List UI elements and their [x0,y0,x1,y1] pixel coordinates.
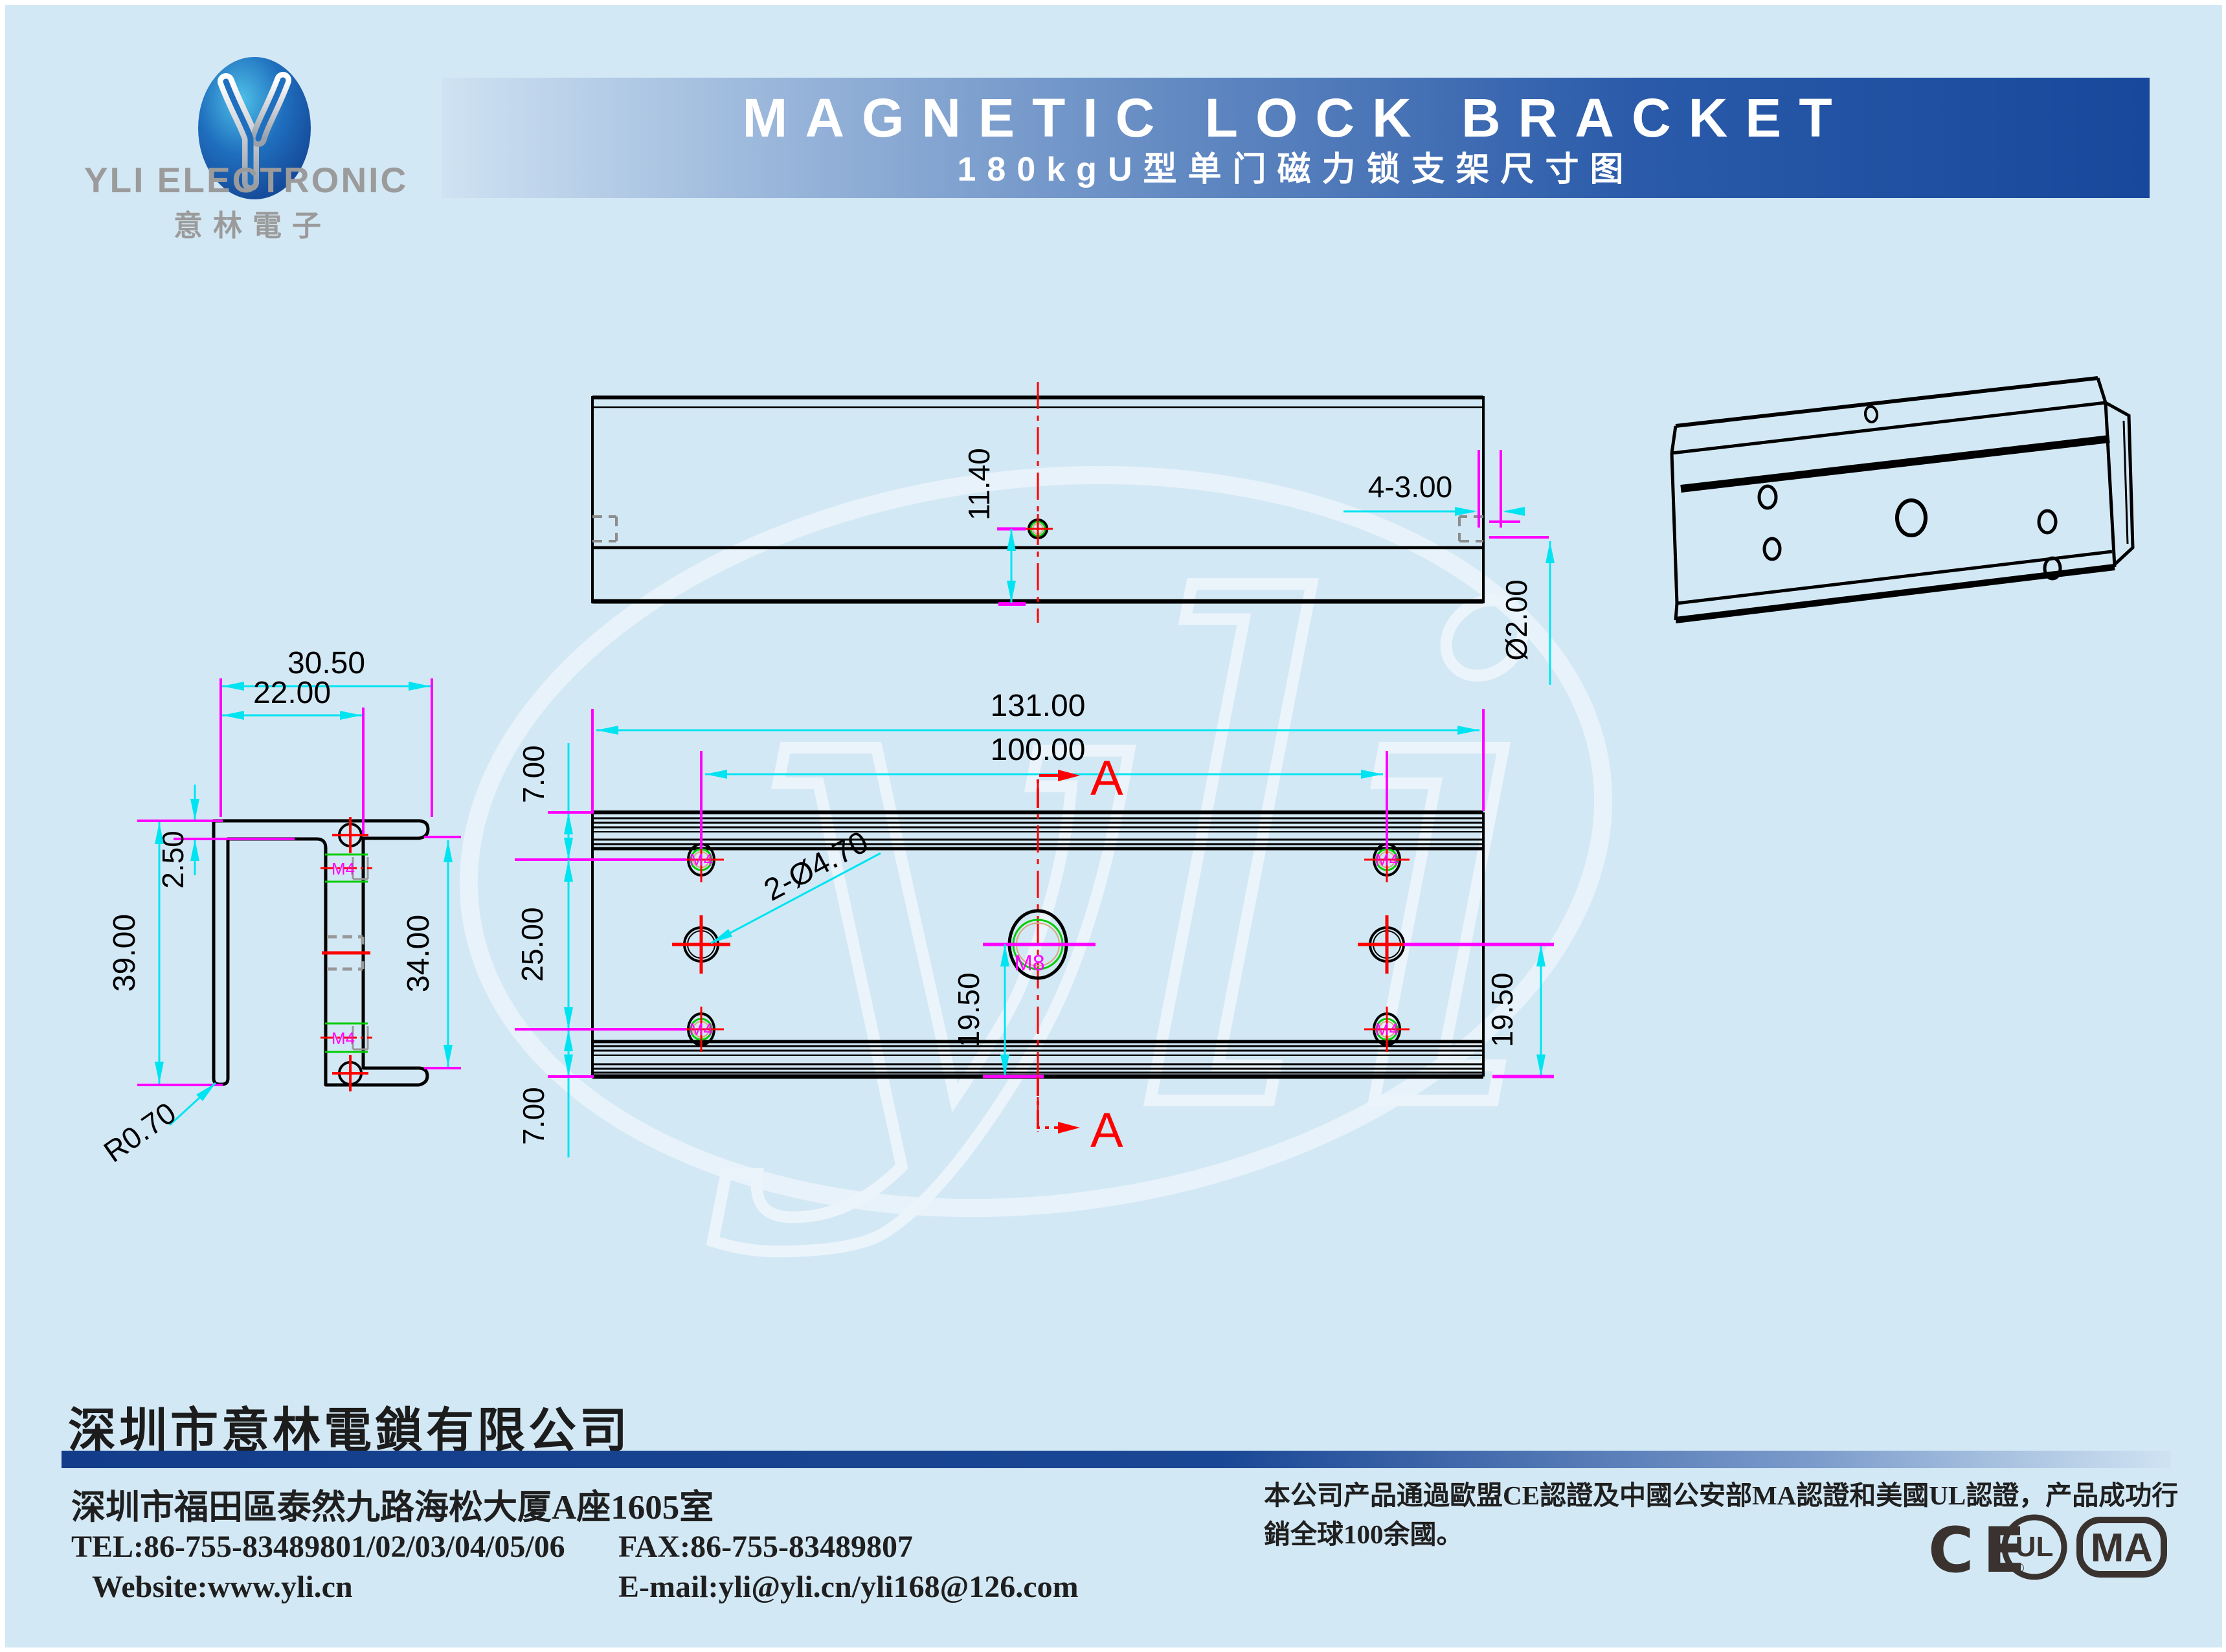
thread-label-m4: M4 [332,859,355,878]
dim-text-4-3-00: 4-3.00 [1368,470,1452,504]
thread-label-m8: M8 [1014,951,1044,976]
dim-text-7-00-bottom: 7.00 [517,1087,550,1145]
dim-2-50: 2.50 [156,785,295,889]
dim-30-50: 30.50 [221,646,432,817]
dim-text-22-00: 22.00 [253,676,331,710]
thread-label-m4: M4 [1375,850,1399,869]
dim-text-11-40: 11.40 [962,448,996,520]
thread-label-m4: M4 [690,1020,713,1039]
ma-mark-icon: MA [2080,1520,2164,1574]
section-label-bottom: A [1090,1103,1123,1158]
ul-registered-symbol: ® [2014,1560,2024,1576]
dim-text-7-00-top: 7.00 [517,745,550,803]
phone-number: TEL:86-755-83489801/02/03/04/05/06 [71,1529,565,1565]
isometric-view [1672,378,2133,620]
section-label-top: A [1090,751,1123,806]
drawing-sheet: YLI ELECTRONIC 意林電子 MAGNETIC LOCK BRACKE… [0,0,2226,1652]
dim-text-19-50-center: 19.50 [952,972,985,1047]
dim-text-19-50-right: 19.50 [1485,972,1519,1047]
thread-label-m4: M4 [332,1029,355,1048]
dim-22-00: 22.00 [222,676,363,834]
website-url: Website:www.yli.cn [92,1569,353,1605]
footer-divider-bar [62,1451,2171,1468]
certification-logos: CE UL ® MA [1917,1508,2188,1592]
dim-text-100-00: 100.00 [991,733,1086,767]
cert-logos-svg: CE UL ® MA [1917,1508,2188,1592]
dim-text-131-00: 131.00 [991,689,1086,723]
dim-7-00-top: 7.00 [515,743,686,860]
company-address: 深圳市福田區泰然九路海松大厦A座1605室 [71,1480,714,1529]
thread-label-m4: M4 [1375,1020,1399,1039]
thread-label-m4: M4 [690,850,713,869]
dim-text-thickness: Ø2.00 [1500,579,1533,660]
dim-text-r0-70: R0.70 [98,1095,182,1168]
hole-4-70-left [672,915,730,974]
dim-text-34-00: 34.00 [401,915,436,992]
dim-text-25-00: 25.00 [515,907,549,981]
profile-view: M4 M4 30.50 [98,646,461,1168]
email-address: E-mail:yli@yli.cn/yli168@126.com [618,1569,1079,1605]
dim-25-00: 25.00 [515,860,573,1029]
dim-r0-70: R0.70 [98,1083,216,1168]
dim-34-00: 34.00 [401,837,461,1068]
dim-text-39-00: 39.00 [107,914,142,992]
ul-mark-text: UL [2016,1531,2054,1563]
ma-mark-text: MA [2091,1526,2153,1570]
profile-mid-slot [322,937,370,969]
fax-number: FAX:86-755-83489807 [618,1529,913,1565]
profile-outline [214,821,428,1085]
